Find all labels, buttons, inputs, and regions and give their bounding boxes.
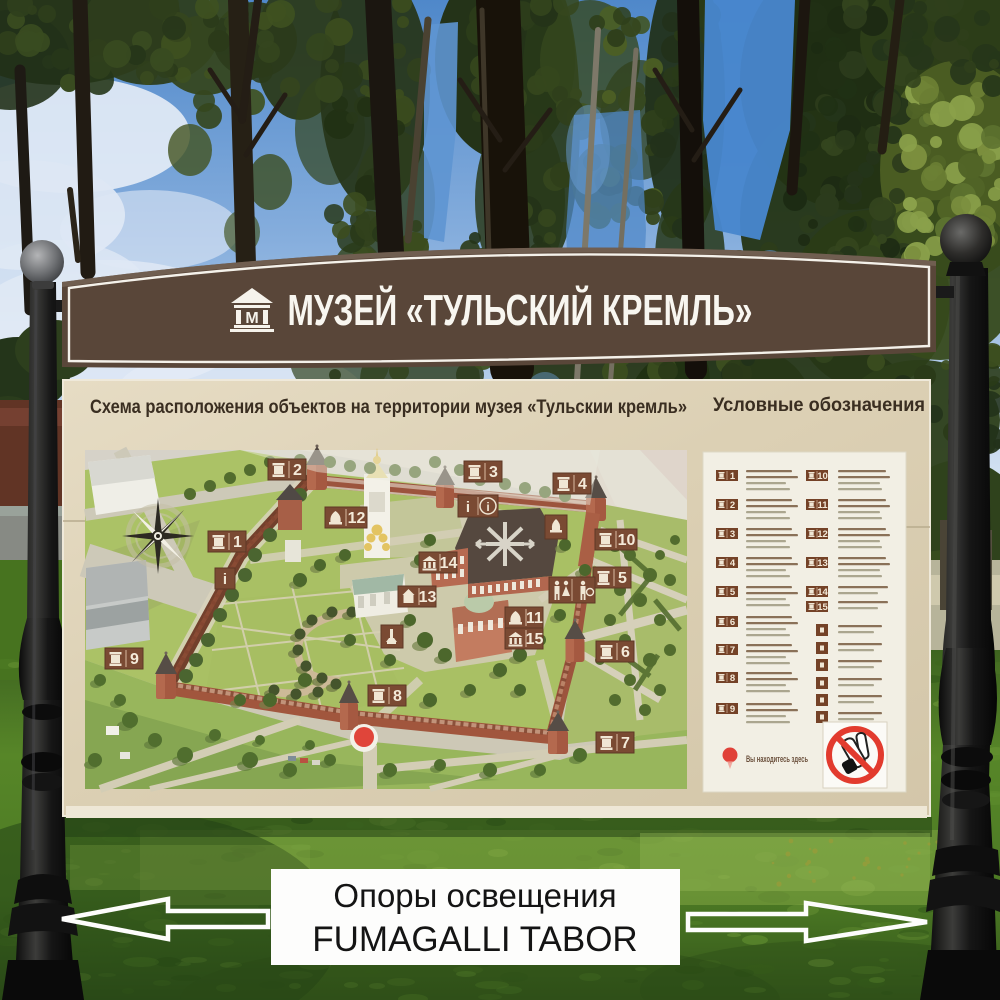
- svg-text:14: 14: [440, 555, 458, 572]
- svg-text:6: 6: [730, 617, 735, 628]
- svg-text:12: 12: [348, 510, 366, 527]
- svg-text:Вы находитесь здесь: Вы находитесь здесь: [746, 754, 808, 764]
- svg-text:15: 15: [526, 631, 544, 648]
- svg-text:15: 15: [817, 602, 828, 613]
- svg-text:5: 5: [618, 570, 627, 587]
- svg-text:13: 13: [419, 589, 437, 606]
- svg-text:2: 2: [293, 462, 302, 479]
- svg-text:5: 5: [730, 587, 736, 598]
- svg-text:4: 4: [730, 558, 736, 569]
- svg-text:2: 2: [730, 500, 735, 511]
- svg-text:1: 1: [730, 471, 736, 482]
- svg-text:i: i: [486, 500, 489, 514]
- svg-text:9: 9: [730, 704, 735, 715]
- svg-text:8: 8: [730, 673, 735, 684]
- svg-text:6: 6: [621, 644, 630, 661]
- svg-text:11: 11: [526, 610, 543, 627]
- svg-text:i: i: [466, 499, 470, 516]
- svg-text:13: 13: [817, 558, 828, 569]
- svg-text:Опоры освещения: Опоры освещения: [333, 877, 616, 914]
- svg-text:10: 10: [817, 471, 828, 482]
- svg-text:7: 7: [621, 735, 630, 752]
- svg-text:4: 4: [578, 476, 587, 493]
- svg-text:МУЗЕЙ «ТУЛЬСКИЙ КРЕМЛЬ»: МУЗЕЙ «ТУЛЬСКИЙ КРЕМЛЬ»: [288, 284, 753, 335]
- svg-text:10: 10: [618, 532, 636, 549]
- svg-text:Схема расположения объектов на: Схема расположения объектов на территори…: [90, 396, 687, 418]
- svg-text:14: 14: [817, 587, 828, 598]
- svg-text:11: 11: [817, 500, 828, 511]
- svg-text:3: 3: [730, 529, 735, 540]
- svg-text:M: M: [245, 310, 258, 327]
- svg-text:FUMAGALLI TABOR: FUMAGALLI TABOR: [312, 920, 637, 959]
- svg-text:1: 1: [233, 534, 242, 551]
- svg-text:9: 9: [130, 651, 139, 668]
- svg-text:12: 12: [817, 529, 828, 540]
- svg-text:i: i: [223, 571, 227, 588]
- svg-text:8: 8: [393, 688, 402, 705]
- svg-text:3: 3: [489, 464, 498, 481]
- svg-text:Условные обозначения: Условные обозначения: [713, 394, 925, 416]
- svg-text:7: 7: [730, 645, 735, 656]
